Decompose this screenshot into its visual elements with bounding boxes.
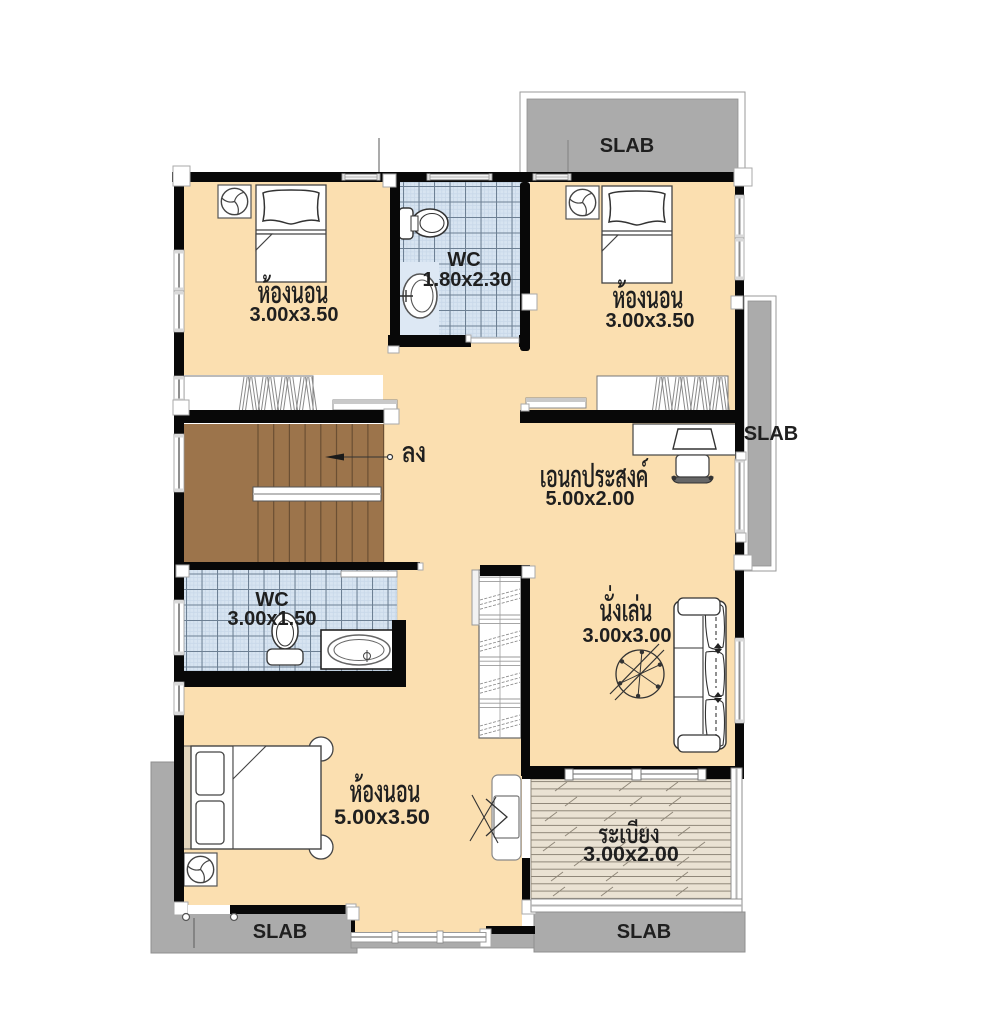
svg-text:3.00x3.50: 3.00x3.50 xyxy=(250,304,339,326)
svg-text:SLAB: SLAB xyxy=(600,135,654,157)
svg-text:SLAB: SLAB xyxy=(253,921,307,943)
svg-text:3.00x3.50: 3.00x3.50 xyxy=(606,310,695,332)
svg-text:SLAB: SLAB xyxy=(744,423,798,445)
svg-text:SLAB: SLAB xyxy=(617,921,671,943)
svg-text:5.00x3.50: 5.00x3.50 xyxy=(334,805,430,829)
svg-text:3.00x2.00: 3.00x2.00 xyxy=(583,842,679,866)
svg-text:3.00x1.50: 3.00x1.50 xyxy=(228,608,317,630)
svg-text:3.00x3.00: 3.00x3.00 xyxy=(583,625,672,647)
svg-text:1.80x2.30: 1.80x2.30 xyxy=(423,269,512,291)
svg-text:5.00x2.00: 5.00x2.00 xyxy=(546,488,635,510)
svg-text:WC: WC xyxy=(447,249,480,271)
